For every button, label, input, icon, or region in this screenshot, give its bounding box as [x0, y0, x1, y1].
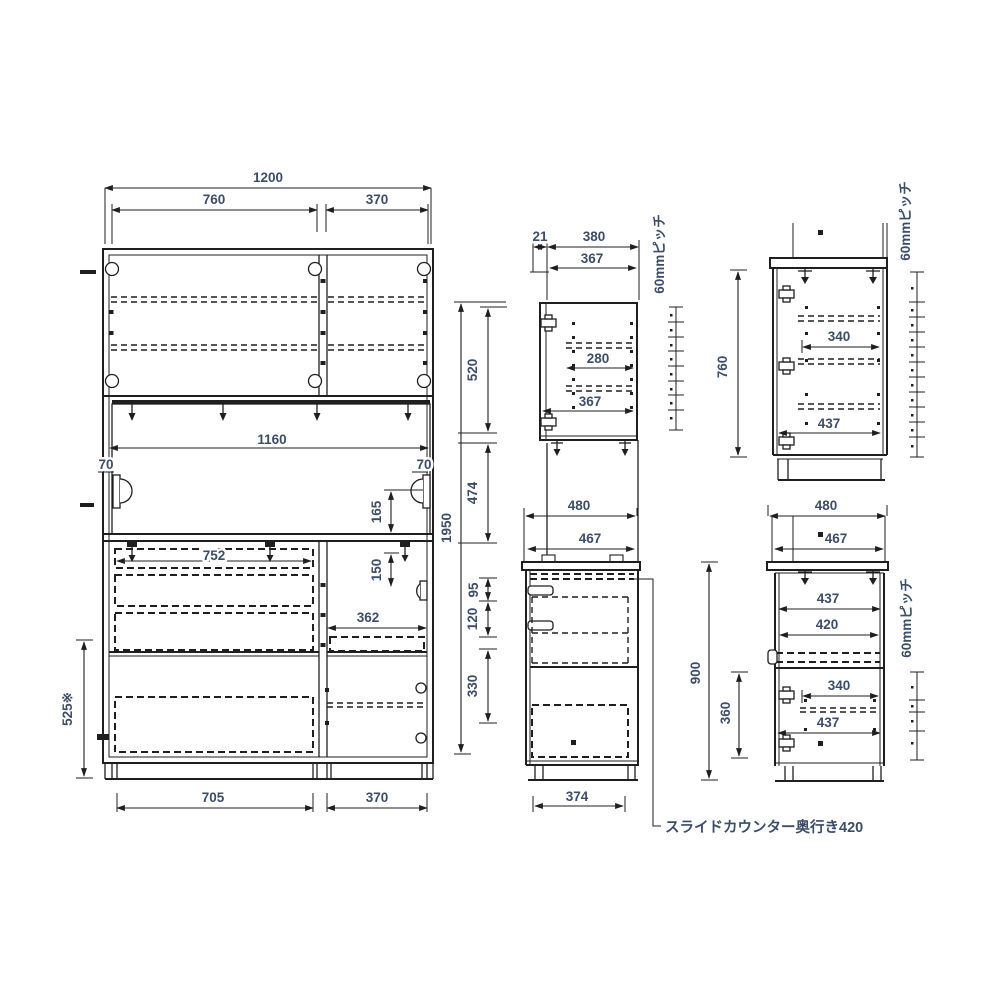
- dim-shelf-depth: 280: [587, 351, 610, 366]
- door-front-left: [115, 697, 313, 752]
- counter-top: [522, 562, 640, 570]
- furniture-dimension-diagram: 1200 760 370 1160: [0, 0, 1000, 1000]
- dim-total-width: 1200: [253, 170, 283, 185]
- front-view: 1200 760 370 1160: [60, 170, 507, 812]
- hinge-icon: [779, 286, 794, 302]
- dim-upper-height: 520: [465, 359, 480, 382]
- upper-side-view-right: 340 437 760 60mmピッチ: [715, 181, 925, 480]
- door-knob: [106, 263, 119, 276]
- counter-connectors: [127, 542, 410, 562]
- small-drawer-front: [330, 637, 424, 651]
- dim-upper-right-width: 370: [366, 192, 389, 207]
- hinge-icon: [541, 414, 556, 430]
- hinge-icon: [779, 433, 794, 449]
- dim-counter-depth: 480: [815, 498, 838, 513]
- shelf-pin-holes: [805, 306, 880, 425]
- dim-shelf-depth: 340: [828, 329, 851, 344]
- slide-counter-note: スライドカウンター奥行き420: [665, 818, 863, 836]
- dim-total-height: 1950: [439, 513, 454, 543]
- dim-lower-inner-depth: 437: [817, 715, 840, 730]
- counter-top: [767, 562, 888, 570]
- shelf-pitch-label: 60mmピッチ: [899, 578, 914, 658]
- plinth: [105, 763, 433, 779]
- dim-base-depth: 374: [566, 789, 589, 804]
- height-dimension-chain: 1950 520 474 95 120 330: [439, 302, 507, 754]
- dim-bottom-inner-depth: 367: [579, 394, 602, 409]
- dim-handle-right: 70: [416, 457, 431, 472]
- niche-handle-right: [411, 475, 430, 508]
- shelf-pitch-label: 60mmピッチ: [652, 214, 667, 294]
- dim-drawer1-height: 95: [466, 582, 481, 598]
- connectors: [798, 570, 880, 585]
- dim-left-lower-height: 525※: [60, 692, 75, 726]
- dim-slide-depth: 420: [816, 617, 839, 632]
- dim-bottom-right-width: 370: [366, 790, 389, 805]
- dim-upper-inner-depth: 437: [817, 591, 840, 606]
- shelf-pin-marks: [110, 279, 428, 365]
- door-pull-left: [97, 734, 109, 740]
- dim-height: 760: [715, 356, 730, 379]
- dim-niche-width: 1160: [257, 432, 286, 447]
- dim-inner-depth: 367: [581, 251, 604, 266]
- pitch-scale: [668, 307, 684, 430]
- hinge-icon: [541, 315, 556, 331]
- upper-side-view: 21 380 367 280 367 60mmピッチ: [530, 214, 684, 562]
- dim-height: 900: [688, 662, 703, 685]
- right-compartment-handle: [417, 581, 427, 600]
- niche-hooks: [129, 402, 412, 421]
- pitch-scale: [909, 272, 925, 457]
- dim-depth: 380: [583, 229, 606, 244]
- dim-right-inner-width: 362: [357, 610, 380, 625]
- door-side-dashed: [532, 705, 628, 757]
- dim-handle-height: 165: [369, 500, 384, 523]
- top-board: [770, 258, 887, 268]
- dim-back-offset: 21: [532, 229, 548, 244]
- drawer-front-2: [115, 575, 313, 606]
- dim-drawer2-height: 120: [465, 608, 480, 631]
- shelf-pitch-label: 60mmピッチ: [898, 181, 913, 261]
- dim-drawer3-height: 330: [465, 675, 480, 698]
- dim-bottom-left-width: 705: [202, 790, 225, 805]
- mount-connectors: [798, 268, 880, 284]
- slide-handle: [768, 650, 777, 664]
- dim-right-handle-height: 150: [369, 559, 384, 582]
- hinge-icon: [779, 358, 794, 374]
- drawer-handle-side: [528, 586, 553, 595]
- dim-shelf-depth: 340: [828, 678, 851, 693]
- dim-inner-depth: 467: [579, 531, 602, 546]
- hinge-icon: [779, 687, 794, 703]
- niche-handle-left: [113, 475, 132, 508]
- dim-drawer-width: 752: [203, 548, 226, 563]
- dim-handle-left: 70: [98, 457, 113, 472]
- dim-counter-inner-depth: 467: [825, 531, 848, 546]
- dim-inner-depth: 437: [818, 416, 841, 431]
- diagram-svg: 1200 760 370 1160: [0, 0, 1000, 1000]
- hinge-icon: [779, 735, 794, 751]
- dim-counter-depth: 480: [568, 498, 591, 513]
- dim-lower-section-height: 360: [718, 702, 733, 725]
- base-connectors: [551, 440, 631, 456]
- drawer-front-3: [115, 613, 313, 650]
- lower-side-view-right: 480 467 437 420 340 437: [688, 498, 925, 781]
- dim-upper-left-width: 760: [203, 192, 226, 207]
- dim-middle-height: 474: [465, 481, 480, 504]
- pitch-scale: [909, 672, 925, 760]
